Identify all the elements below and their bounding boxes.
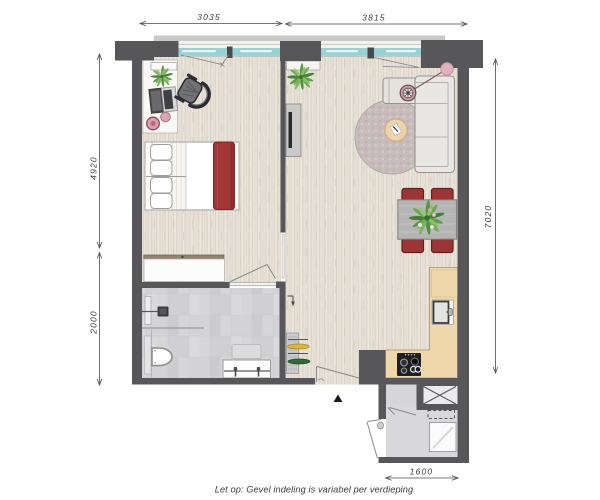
svg-text:4920: 4920 (89, 156, 99, 180)
svg-text:3035: 3035 (197, 12, 221, 22)
svg-text:1600: 1600 (410, 467, 434, 477)
svg-text:3815: 3815 (362, 13, 386, 23)
svg-text:Let op: Gevel indeling is vari: Let op: Gevel indeling is variabel per v… (215, 485, 414, 495)
svg-text:2000: 2000 (89, 310, 99, 335)
svg-text:7020: 7020 (483, 205, 493, 229)
